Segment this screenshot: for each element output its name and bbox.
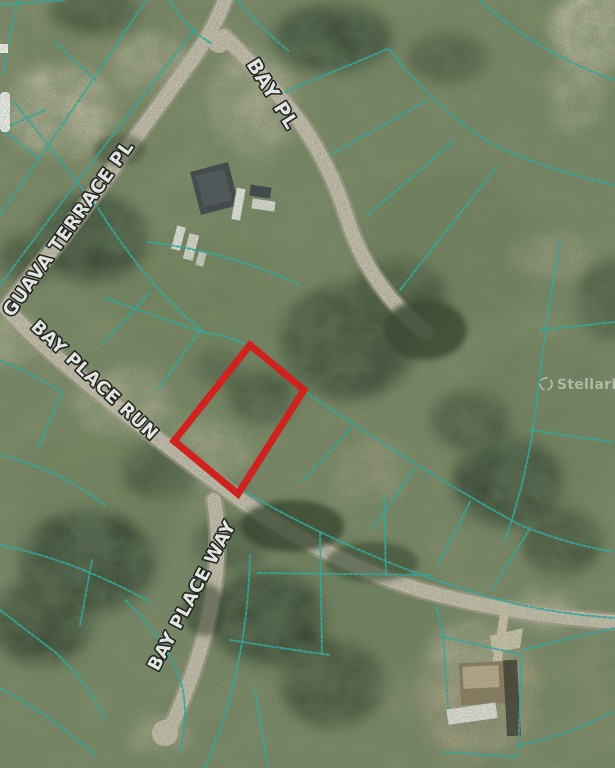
aerial-map: BAY PL GUAVA TERRACE PL BAY PLACE RUN BA…: [0, 0, 615, 768]
aerial-map-canvas: BAY PL GUAVA TERRACE PL BAY PLACE RUN BA…: [0, 0, 615, 768]
image-grain: [0, 0, 615, 768]
